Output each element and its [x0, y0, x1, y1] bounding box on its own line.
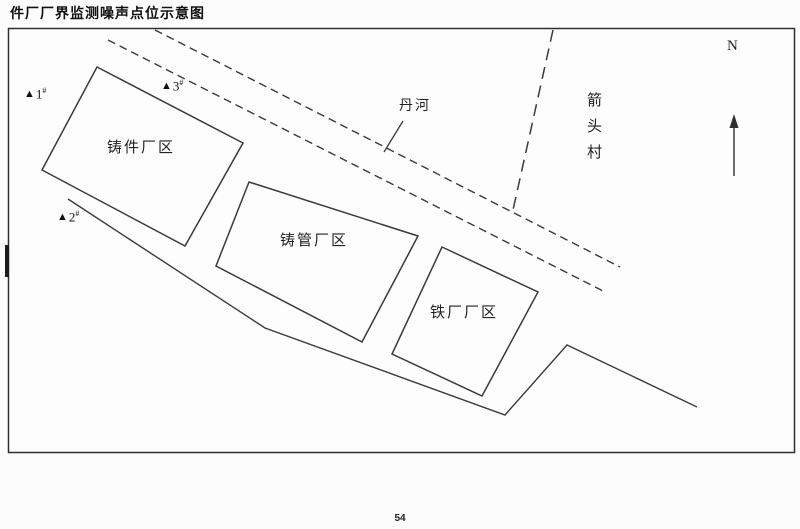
monitoring-point-suffix: #	[179, 78, 183, 87]
triangle-marker-icon: ▲	[24, 88, 35, 100]
village-label: 箭头村	[583, 92, 604, 170]
page-number: 54	[0, 513, 800, 524]
noise-monitoring-point-1: ▲1#	[24, 86, 46, 102]
river-label: 丹河	[399, 97, 431, 113]
north-label: N	[727, 38, 738, 55]
casting-plant-label: 铸件厂区	[107, 139, 175, 156]
triangle-marker-icon: ▲	[161, 80, 172, 92]
monitoring-point-suffix: #	[42, 86, 46, 95]
monitoring-point-suffix: #	[75, 209, 79, 218]
pipe-plant-label: 铸管厂区	[280, 232, 348, 249]
noise-monitoring-point-2: ▲2#	[57, 209, 79, 225]
iron-plant-label: 铁厂厂区	[430, 304, 498, 321]
noise-monitoring-point-3: ▲3#	[161, 78, 183, 94]
triangle-marker-icon: ▲	[57, 211, 68, 223]
diagram-border	[9, 29, 795, 453]
site-map-diagram: 铸件厂区 铸管厂区 铁厂厂区 丹河	[0, 0, 800, 529]
